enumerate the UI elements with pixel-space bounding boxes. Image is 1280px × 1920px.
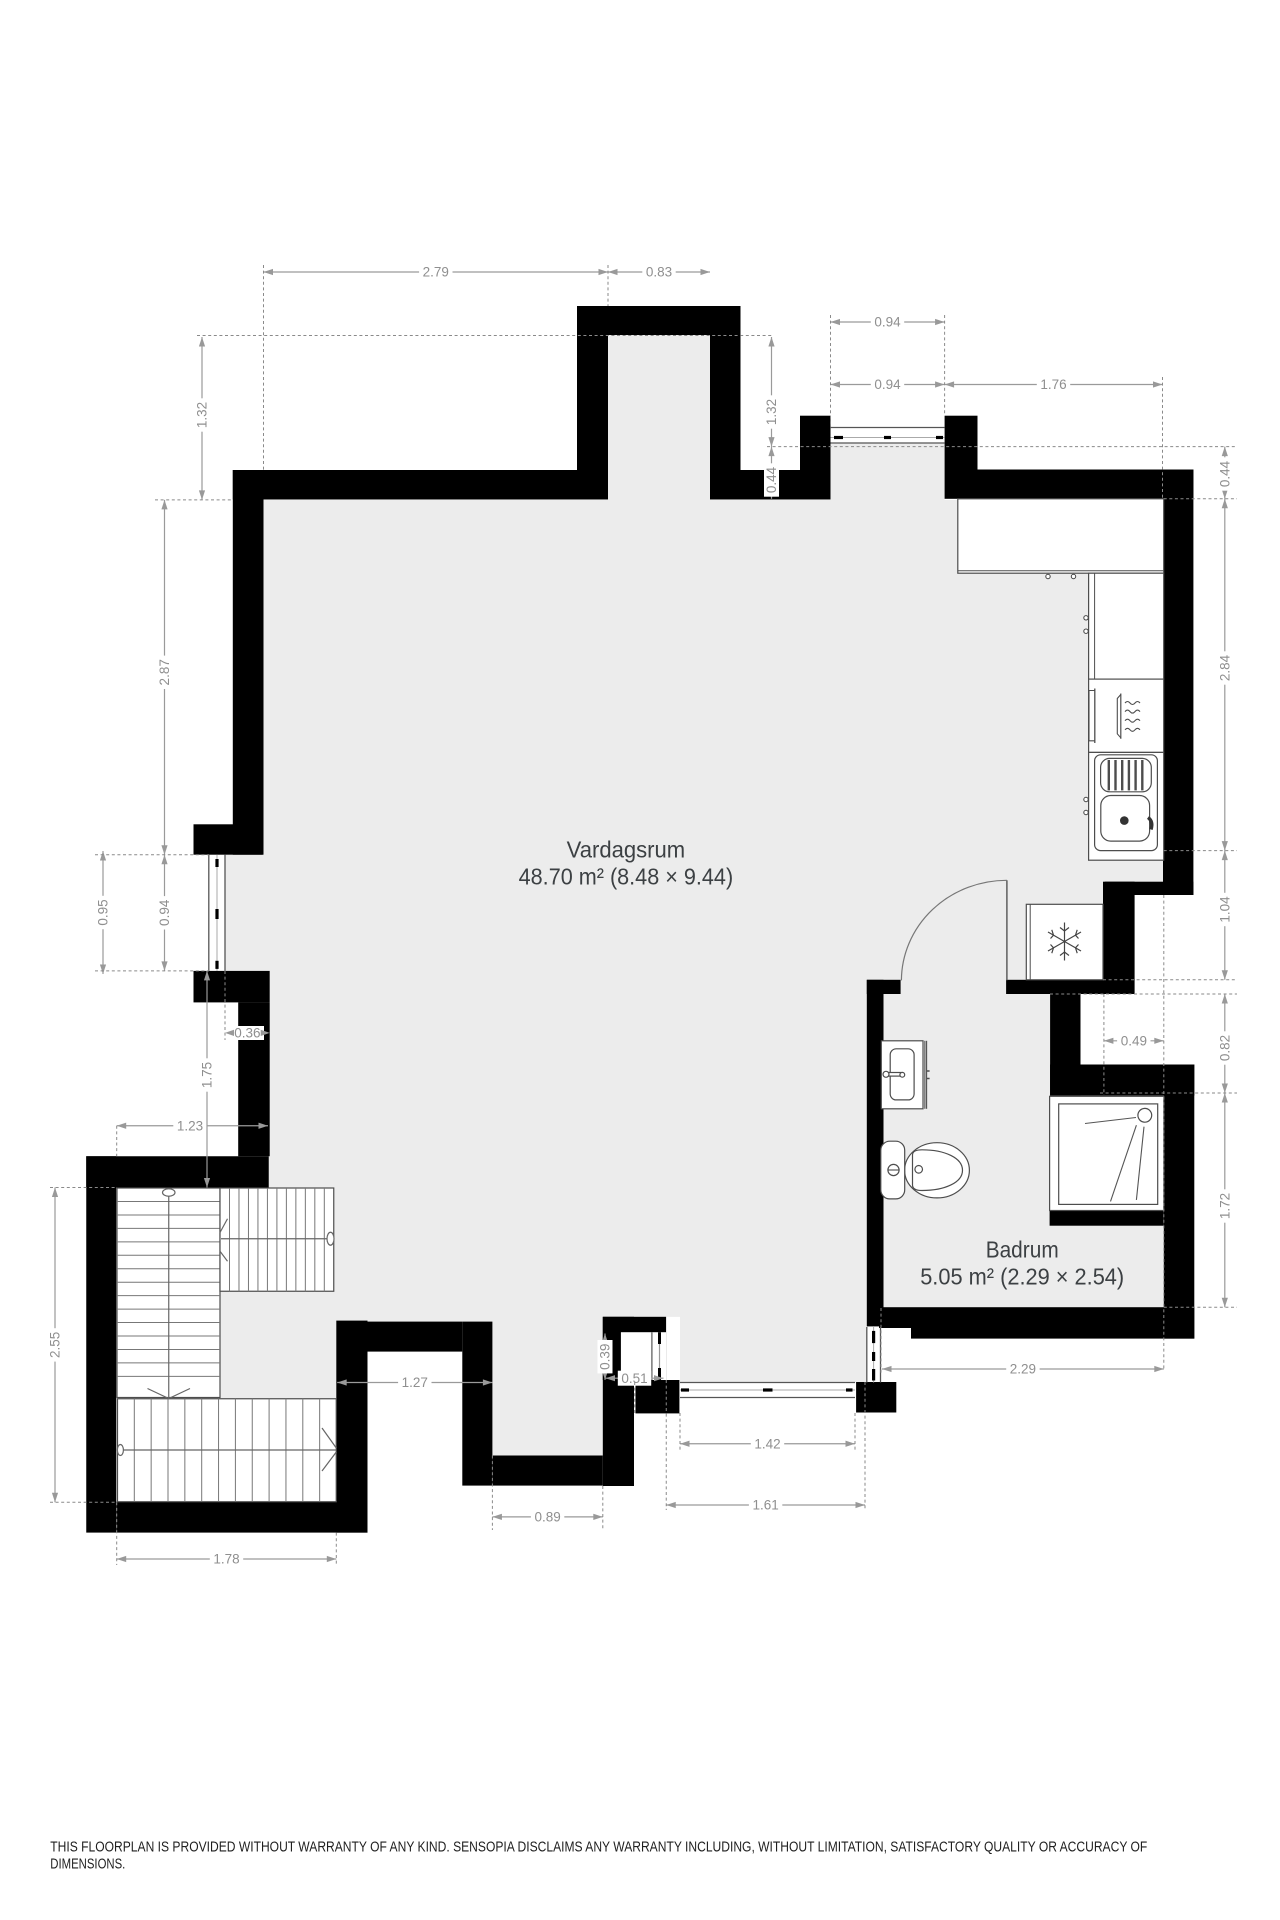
svg-text:0.89: 0.89 [534, 1510, 560, 1525]
svg-text:2.79: 2.79 [423, 265, 449, 280]
svg-text:1.75: 1.75 [200, 1062, 215, 1088]
svg-text:0.49: 0.49 [1121, 1034, 1147, 1049]
svg-text:2.55: 2.55 [48, 1332, 63, 1358]
svg-text:0.94: 0.94 [874, 315, 901, 330]
svg-text:2.29: 2.29 [1010, 1362, 1036, 1377]
svg-text:1.32: 1.32 [764, 399, 779, 425]
svg-text:0.44: 0.44 [764, 466, 779, 493]
svg-text:1.27: 1.27 [402, 1375, 428, 1390]
svg-text:48.70 m² (8.48 × 9.44): 48.70 m² (8.48 × 9.44) [519, 864, 734, 890]
svg-text:0.83: 0.83 [646, 265, 672, 280]
svg-text:DIMENSIONS.: DIMENSIONS. [50, 1857, 125, 1873]
svg-text:0.44: 0.44 [1218, 460, 1233, 487]
svg-text:5.05 m² (2.29 × 2.54): 5.05 m² (2.29 × 2.54) [920, 1264, 1124, 1290]
svg-text:2.87: 2.87 [157, 659, 172, 685]
svg-text:0.39: 0.39 [598, 1344, 613, 1370]
svg-text:1.42: 1.42 [754, 1436, 780, 1451]
svg-text:1.72: 1.72 [1218, 1193, 1233, 1219]
svg-text:1.76: 1.76 [1040, 377, 1066, 392]
svg-text:Badrum: Badrum [986, 1237, 1059, 1263]
svg-text:0.94: 0.94 [874, 377, 901, 392]
svg-text:0.95: 0.95 [96, 899, 111, 925]
svg-text:1.61: 1.61 [752, 1498, 778, 1513]
svg-text:0.82: 0.82 [1218, 1035, 1233, 1061]
svg-text:1.78: 1.78 [213, 1552, 239, 1567]
svg-text:THIS FLOORPLAN IS PROVIDED WIT: THIS FLOORPLAN IS PROVIDED WITHOUT WARRA… [50, 1840, 1147, 1856]
svg-text:0.94: 0.94 [157, 899, 172, 926]
svg-text:0.36: 0.36 [234, 1026, 260, 1041]
svg-text:1.23: 1.23 [177, 1118, 203, 1133]
svg-text:2.84: 2.84 [1218, 654, 1233, 681]
svg-text:Vardagsrum: Vardagsrum [567, 837, 686, 863]
svg-text:1.32: 1.32 [195, 402, 210, 428]
svg-text:1.04: 1.04 [1218, 896, 1233, 923]
